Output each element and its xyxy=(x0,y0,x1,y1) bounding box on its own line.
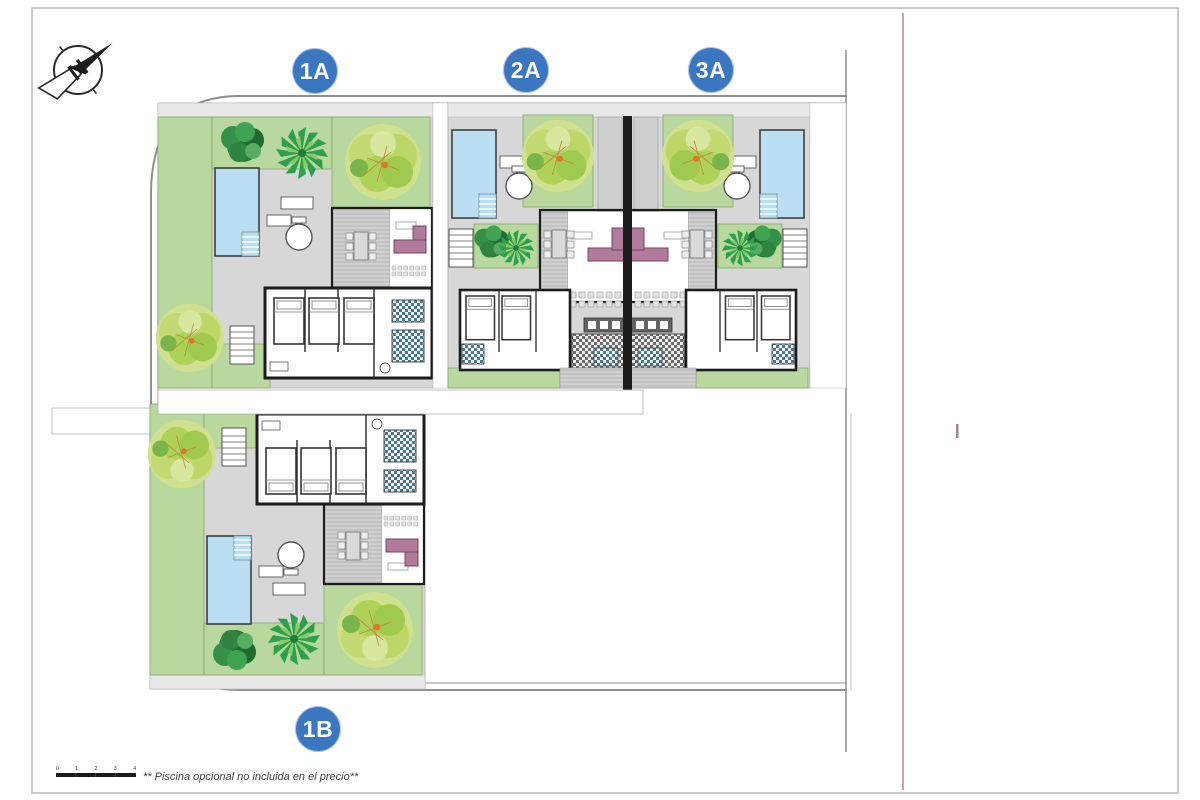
access-corridor xyxy=(158,390,643,414)
bathroom xyxy=(392,300,424,322)
pool xyxy=(215,168,259,256)
bathroom xyxy=(462,344,484,364)
unit-badge-3a: 3A xyxy=(688,47,734,93)
site-plan-svg: N xyxy=(0,0,1200,800)
bed xyxy=(309,298,339,344)
pool-disclaimer-note: ** Piscina opcional no incluida en el pr… xyxy=(143,771,358,783)
sofa xyxy=(413,226,426,240)
exterior-stairs xyxy=(230,326,254,364)
plot-gap xyxy=(810,103,846,388)
villa-1a-plot xyxy=(156,103,433,388)
bed xyxy=(274,298,304,344)
sun-lounger xyxy=(267,215,291,226)
tree-icon xyxy=(345,124,421,200)
bathroom xyxy=(594,348,618,366)
bathroom xyxy=(392,330,424,362)
bed xyxy=(502,296,531,340)
tree-icon xyxy=(522,120,594,192)
pool xyxy=(452,130,496,218)
north-compass-icon: N xyxy=(26,19,131,119)
site-plan-canvas: N 1A 2A 3A 1B 0 1 2 3 4 ···· ** Piscina … xyxy=(0,0,1200,800)
party-wall xyxy=(623,116,632,392)
driveway-entrance xyxy=(52,408,152,434)
survey-tick-mark xyxy=(956,424,959,438)
unit-badge-2a: 2A xyxy=(503,47,549,93)
exterior-stairs xyxy=(449,229,473,267)
unit-badge-1a: 1A xyxy=(292,48,338,94)
dining-set xyxy=(544,230,574,258)
tree-icon xyxy=(156,304,224,372)
scale-bar: 0 1 2 3 4 ···· xyxy=(56,766,136,783)
unit-badge-1b: 1B xyxy=(295,706,341,752)
dining-set xyxy=(346,232,376,260)
plot-gap xyxy=(433,103,448,388)
sofa xyxy=(394,240,426,253)
sun-lounger xyxy=(281,197,313,209)
bed xyxy=(466,296,495,340)
villa-1b-plot xyxy=(148,404,425,689)
bed xyxy=(344,298,374,344)
villa-2a-3a-plot xyxy=(448,103,810,404)
